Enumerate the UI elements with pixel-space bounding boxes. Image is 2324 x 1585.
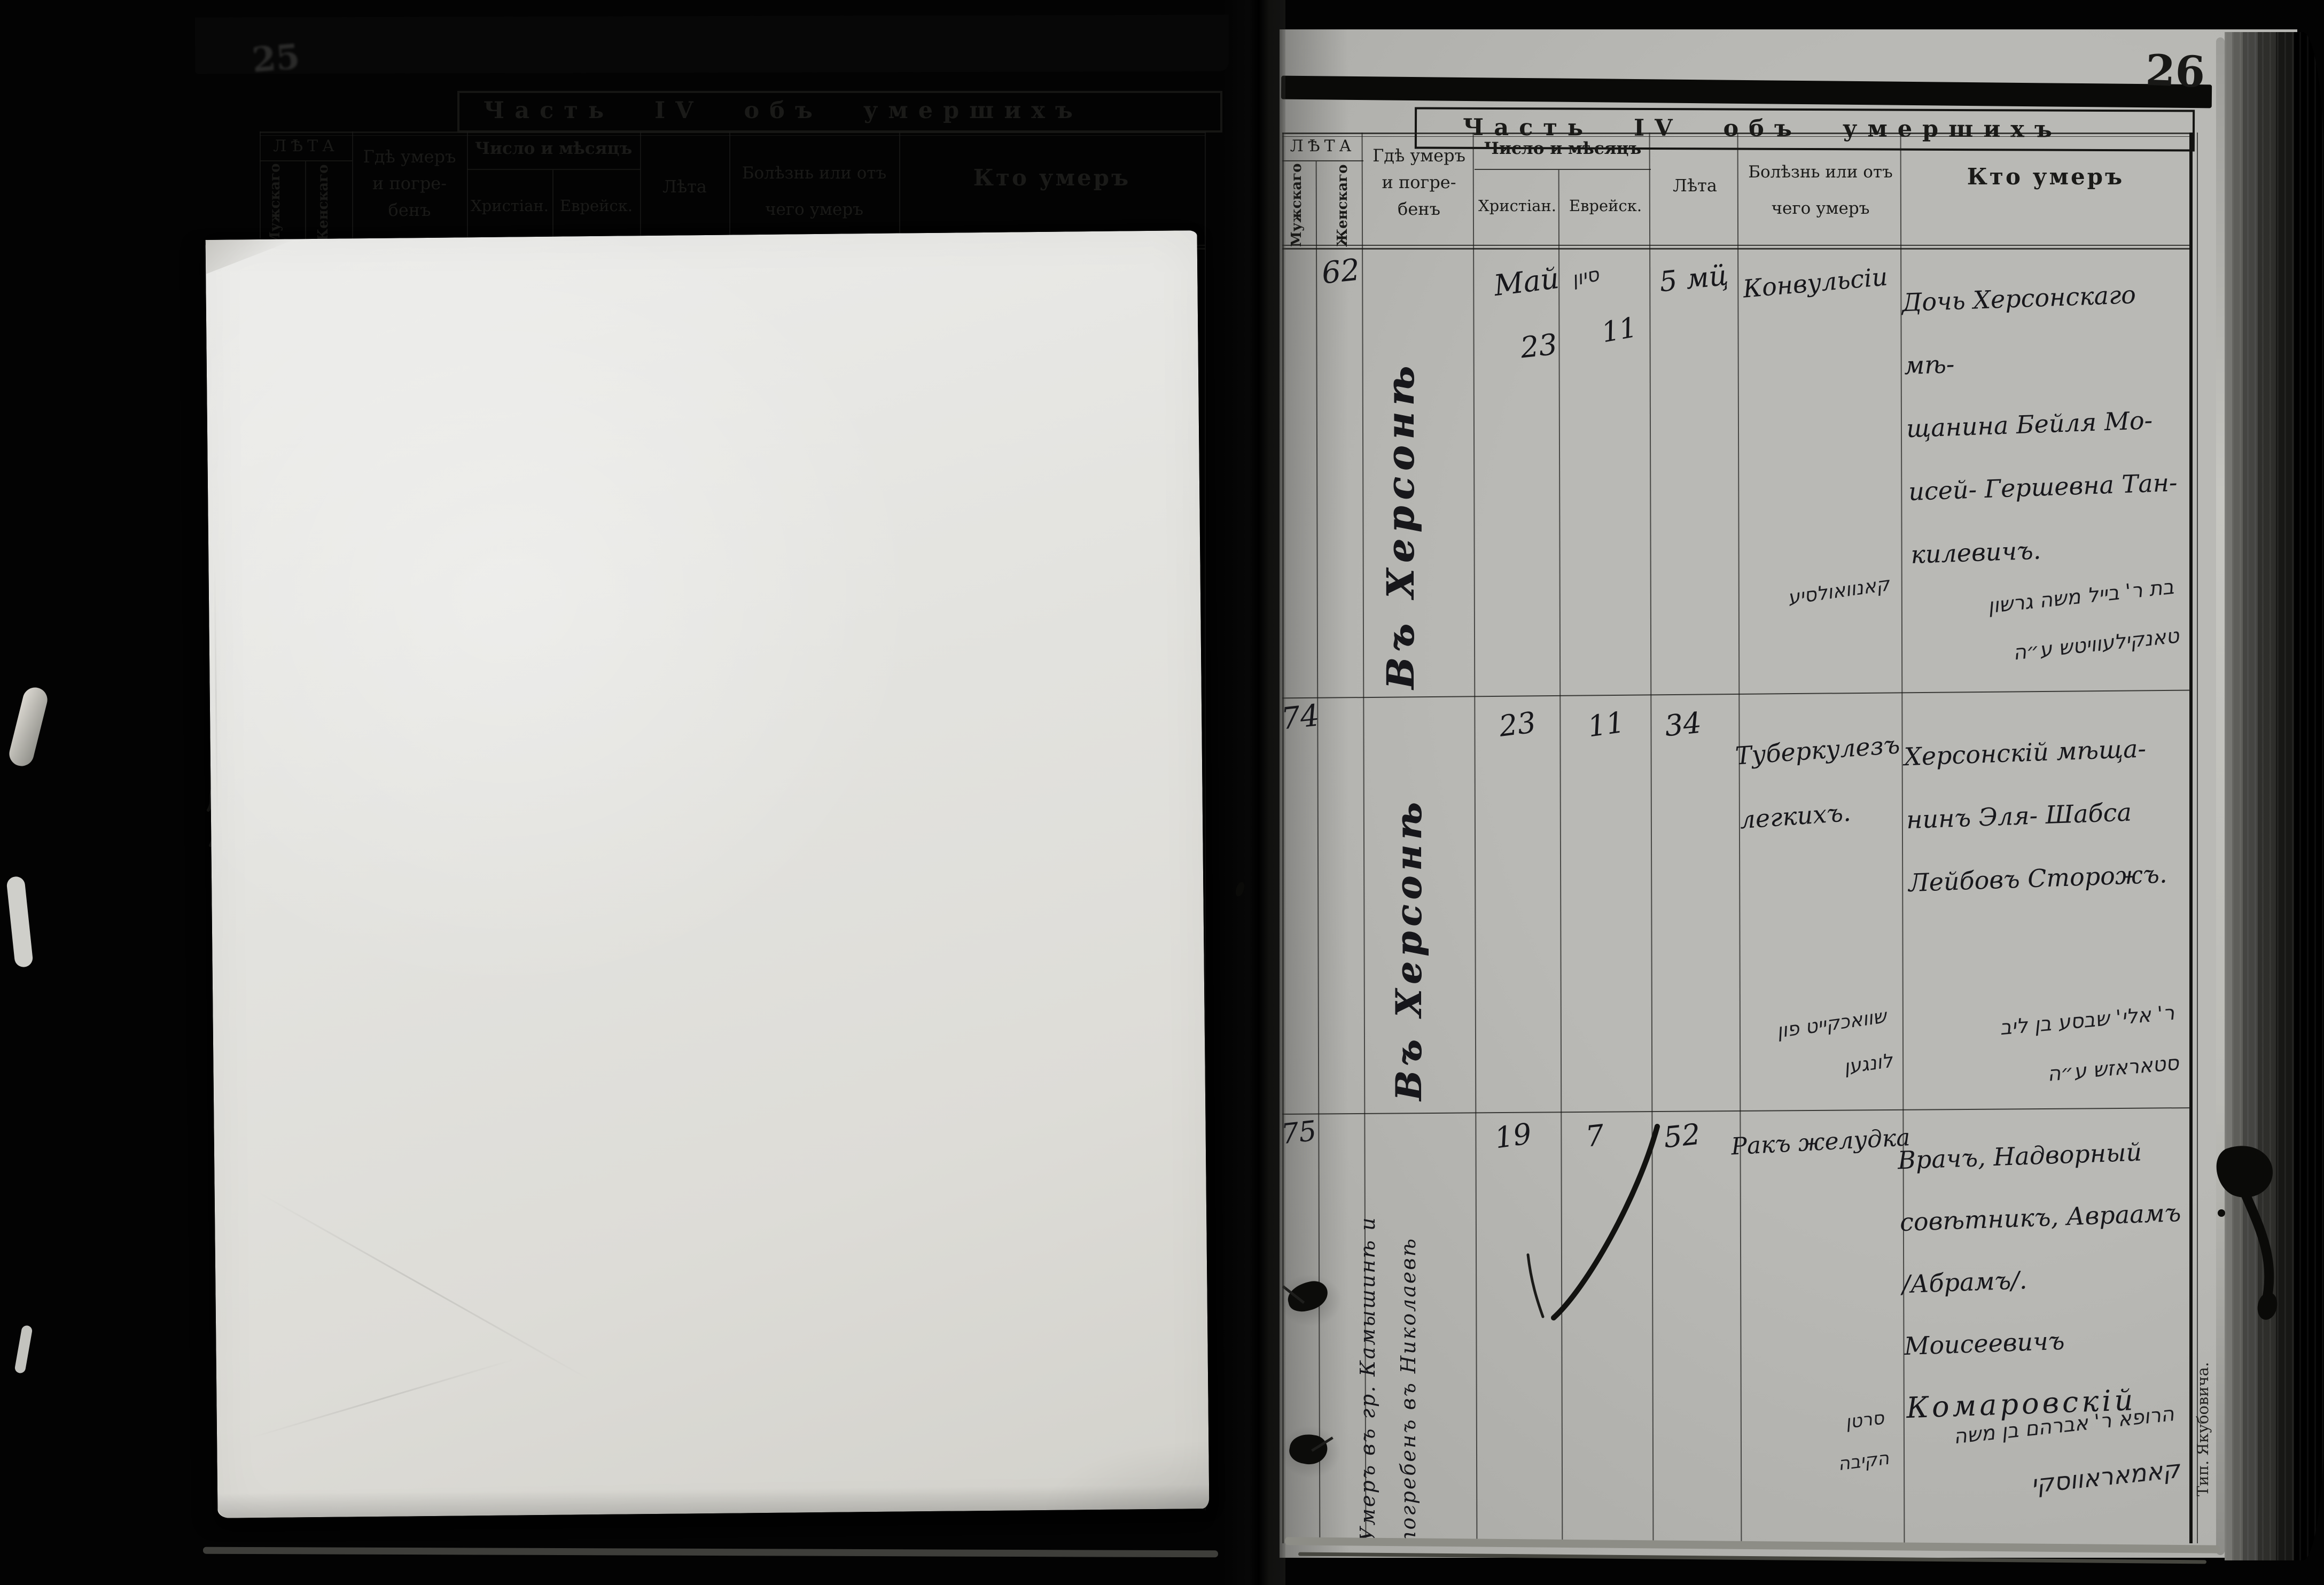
sheet-corner-fold: [206, 239, 297, 274]
col-header-age-group: ЛѢТА: [260, 137, 352, 156]
sheet-crease: [249, 1358, 516, 1439]
entry-74-cause: Туберкулезъ легкихъ.: [1733, 713, 1902, 852]
col-header-christian: Христіан.: [1475, 197, 1560, 215]
entry-74-number: 74: [1280, 698, 1321, 736]
entry-62-christian-day: 23: [1519, 328, 1559, 365]
who-line: Лейбовъ Сторожъ.: [1907, 842, 2190, 914]
entry-75-place-line-1: Умеръ въ гр. Камышинѣ и: [1356, 1120, 1379, 1542]
who-line: /Абрамъ/. Моисеевичъ: [1901, 1244, 2188, 1377]
cause-line: Болѣзнь или отъ: [1739, 154, 1902, 190]
sheet-crease: [214, 561, 218, 828]
col-header-who: Кто умеръ: [1902, 164, 2189, 190]
book-edge-fragment: [14, 1325, 33, 1374]
col-header-female: Женскаго: [315, 166, 331, 247]
entry-74-who: Херсонскій мѣща- нинъ Эля- Шабса Лейбовъ…: [1903, 716, 2190, 914]
where-line: и погре-: [352, 170, 467, 197]
col-header-who: Кто умеръ: [899, 165, 1205, 191]
grid-line: [467, 169, 640, 170]
grid-line: [260, 131, 1205, 133]
cause-line: чего умеръ: [1739, 190, 1902, 227]
left-page-top-edge: [195, 14, 1229, 74]
col-header-christian: Христіан.: [467, 197, 552, 215]
col-header-jewish: Еврейск.: [552, 197, 640, 215]
where-line: бенъ: [1363, 196, 1475, 222]
who-line: Херсонскій мѣща-: [1903, 716, 2186, 788]
cause-line: Болѣзнь или отъ: [729, 155, 899, 191]
book-fore-edge-stack: [2225, 32, 2324, 1560]
col-header-age: Лѣта: [640, 176, 729, 197]
who-line: Врачъ, Надворный: [1897, 1120, 2182, 1191]
ink-blot: [2194, 1138, 2295, 1331]
who-line: щанина Бейля Мо-: [1905, 387, 2188, 460]
cause-line: чего умеръ: [729, 191, 899, 228]
entry-74-jewish-day: 11: [1586, 705, 1627, 744]
where-line: Гдѣ умеръ: [1363, 142, 1475, 169]
col-header-age: Лѣта: [1651, 175, 1739, 196]
entry-74-place: Въ Херсонѣ: [1388, 711, 1430, 1101]
left-page-title: Часть IV объ умершихъ: [483, 97, 1199, 124]
col-header-female: Женскаго: [1335, 166, 1351, 247]
scanned-register-spread: 25 Часть IV объ умершихъ ЛѢТА Мужскаго Ж…: [0, 0, 2324, 1585]
col-header-cause: Болѣзнь или отъ чего умеръ: [1739, 154, 1902, 227]
col-header-male: Мужскаго: [267, 166, 283, 247]
col-header-date-group: Число и мѣсяцъ: [1475, 139, 1651, 158]
who-line: Дочь Херсонскаго мѣ-: [1901, 261, 2186, 397]
grid-line: [305, 161, 306, 250]
where-line: и погре-: [1363, 169, 1475, 196]
book-edge-fragment: [6, 876, 34, 968]
white-cover-sheet: [206, 230, 1210, 1518]
page-number: 26: [2144, 45, 2206, 97]
entry-74-age: 34: [1663, 706, 1703, 743]
entry-74-christian-day: 23: [1497, 705, 1538, 743]
who-line: нинъ Эля- Шабса: [1905, 779, 2188, 851]
col-header-jewish: Еврейск.: [1560, 197, 1651, 215]
grid-line: [260, 160, 352, 161]
grid-line: [1282, 160, 1363, 161]
col-header-male: Мужскаго: [1289, 166, 1305, 247]
col-header-date-group: Число и мѣсяцъ: [467, 139, 640, 158]
who-line: исей- Гершевна Тан-: [1907, 450, 2190, 523]
entry-62-number: 62: [1320, 252, 1362, 291]
col-header-age-group: ЛѢТА: [1282, 137, 1363, 156]
who-line: совѣтникъ, Авраамъ: [1899, 1182, 2184, 1253]
col-header-where: Гдѣ умеръ и погре- бенъ: [352, 143, 467, 223]
where-line: Гдѣ умеръ: [352, 143, 467, 170]
cause-line: легкихъ.: [1737, 777, 1902, 852]
faint-page-number: 25: [251, 36, 301, 80]
book-edge-fragment: [7, 685, 50, 769]
entry-62-place: Въ Херсонѣ: [1378, 267, 1423, 689]
grid-line: [260, 135, 1205, 136]
col-header-cause: Болѣзнь или отъ чего умеръ: [729, 155, 899, 228]
sheet-corner-shade: [984, 1418, 1210, 1511]
grid-line: [1475, 169, 1651, 170]
col-header-where: Гдѣ умеръ и погре- бенъ: [1363, 142, 1475, 222]
entry-62-jewish-day: 11: [1599, 312, 1640, 349]
cause-line: Туберкулезъ: [1733, 713, 1898, 788]
where-line: бенъ: [352, 197, 467, 223]
grid-line: [2197, 133, 2198, 1543]
entry-62-who: Дочь Херсонскаго мѣ- щанина Бейля Мо- ис…: [1901, 261, 2192, 586]
pen-check-stroke: [1512, 1112, 1683, 1336]
book-gutter: [1222, 0, 1285, 1585]
grid-line: [2189, 133, 2193, 1543]
printer-note: Тип. Якубовича.: [2194, 1357, 2212, 1496]
entry-75-place-line-2: погребенъ въ Николаевѣ: [1397, 1160, 1420, 1544]
sheet-crease: [256, 1191, 591, 1381]
